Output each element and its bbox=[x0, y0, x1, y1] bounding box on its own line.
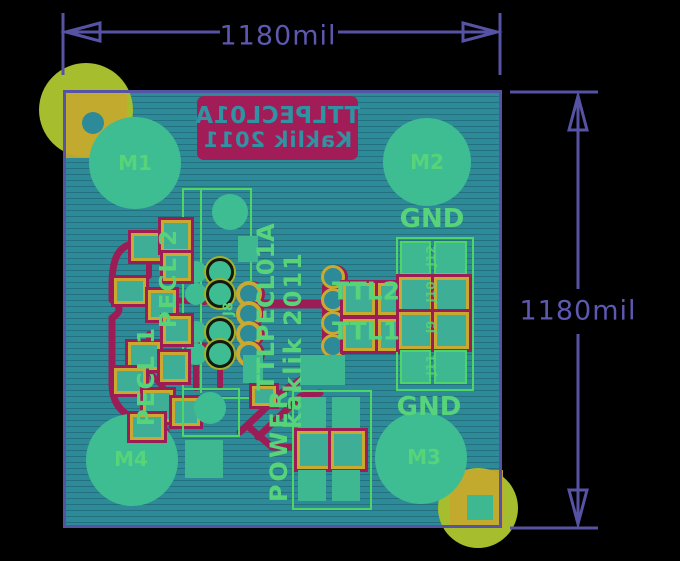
mounting-hole-label-m1: M1 bbox=[118, 151, 152, 175]
j10-pad[interactable] bbox=[434, 277, 469, 314]
label-ttl2: TTL2 bbox=[332, 277, 400, 306]
back-silkscreen-block[interactable]: TTLPECL01A Kaklik 2011 bbox=[197, 96, 358, 160]
dimension-top-value[interactable]: 1180mil bbox=[219, 21, 336, 52]
pcb-render-canvas: M1 M2 M3 M4 TTLPECL01A Kaklik 2011 J8 PE… bbox=[0, 0, 680, 561]
dim-arrow-down bbox=[569, 490, 587, 524]
power-pad-copper[interactable] bbox=[331, 431, 365, 469]
label-power: POWER bbox=[265, 388, 293, 502]
j9-pad[interactable] bbox=[434, 312, 469, 349]
back-silk-author: Kaklik 2011 bbox=[203, 129, 353, 152]
back-silk-title: TTLPECL01A bbox=[195, 104, 360, 129]
power-pad[interactable] bbox=[298, 470, 326, 501]
connector-ref-j10: J10 bbox=[424, 281, 438, 302]
power-pad[interactable] bbox=[332, 470, 360, 501]
connector-j8-ref: J8 bbox=[222, 302, 237, 316]
dimension-right-value[interactable]: 1180mil bbox=[519, 296, 636, 327]
power-pad[interactable] bbox=[332, 397, 360, 428]
connector-ref-j12: J12 bbox=[424, 245, 438, 266]
power-pad-copper[interactable] bbox=[297, 431, 331, 469]
j8-hole-ringed[interactable] bbox=[206, 340, 234, 368]
dim-arrow-up bbox=[569, 96, 587, 130]
connector-ref-j11: J11 bbox=[424, 354, 438, 375]
label-ttl1: TTL1 bbox=[332, 317, 400, 346]
smd-pad[interactable] bbox=[160, 352, 188, 382]
smd-pad-large[interactable] bbox=[185, 440, 223, 478]
corner-hole-top-left bbox=[82, 112, 104, 134]
label-gnd-top: GND bbox=[400, 204, 465, 234]
j8-pad-large[interactable] bbox=[212, 194, 248, 230]
connector-ref-j9: J9 bbox=[424, 321, 438, 334]
label-gnd-bottom: GND bbox=[397, 392, 462, 422]
mounting-hole-label-m2: M2 bbox=[410, 150, 444, 174]
j8-hole[interactable] bbox=[185, 343, 207, 365]
smd-pad[interactable] bbox=[114, 278, 146, 304]
j8-hole[interactable] bbox=[185, 283, 207, 305]
label-pecl1: PECL 1 bbox=[134, 326, 160, 426]
dim-arrow-right bbox=[463, 23, 497, 41]
corner-hole-bottom-right bbox=[467, 495, 493, 520]
dim-arrow-left bbox=[66, 23, 100, 41]
j11-pad[interactable] bbox=[434, 350, 467, 384]
transistor-pad[interactable] bbox=[194, 392, 226, 424]
mounting-hole-label-m4: M4 bbox=[114, 447, 148, 471]
mounting-hole-label-m3: M3 bbox=[407, 445, 441, 469]
j12-pad[interactable] bbox=[434, 241, 467, 275]
label-pecl2: PECL 2 bbox=[156, 228, 182, 328]
label-board-title: TTLPECL01A bbox=[252, 223, 280, 390]
